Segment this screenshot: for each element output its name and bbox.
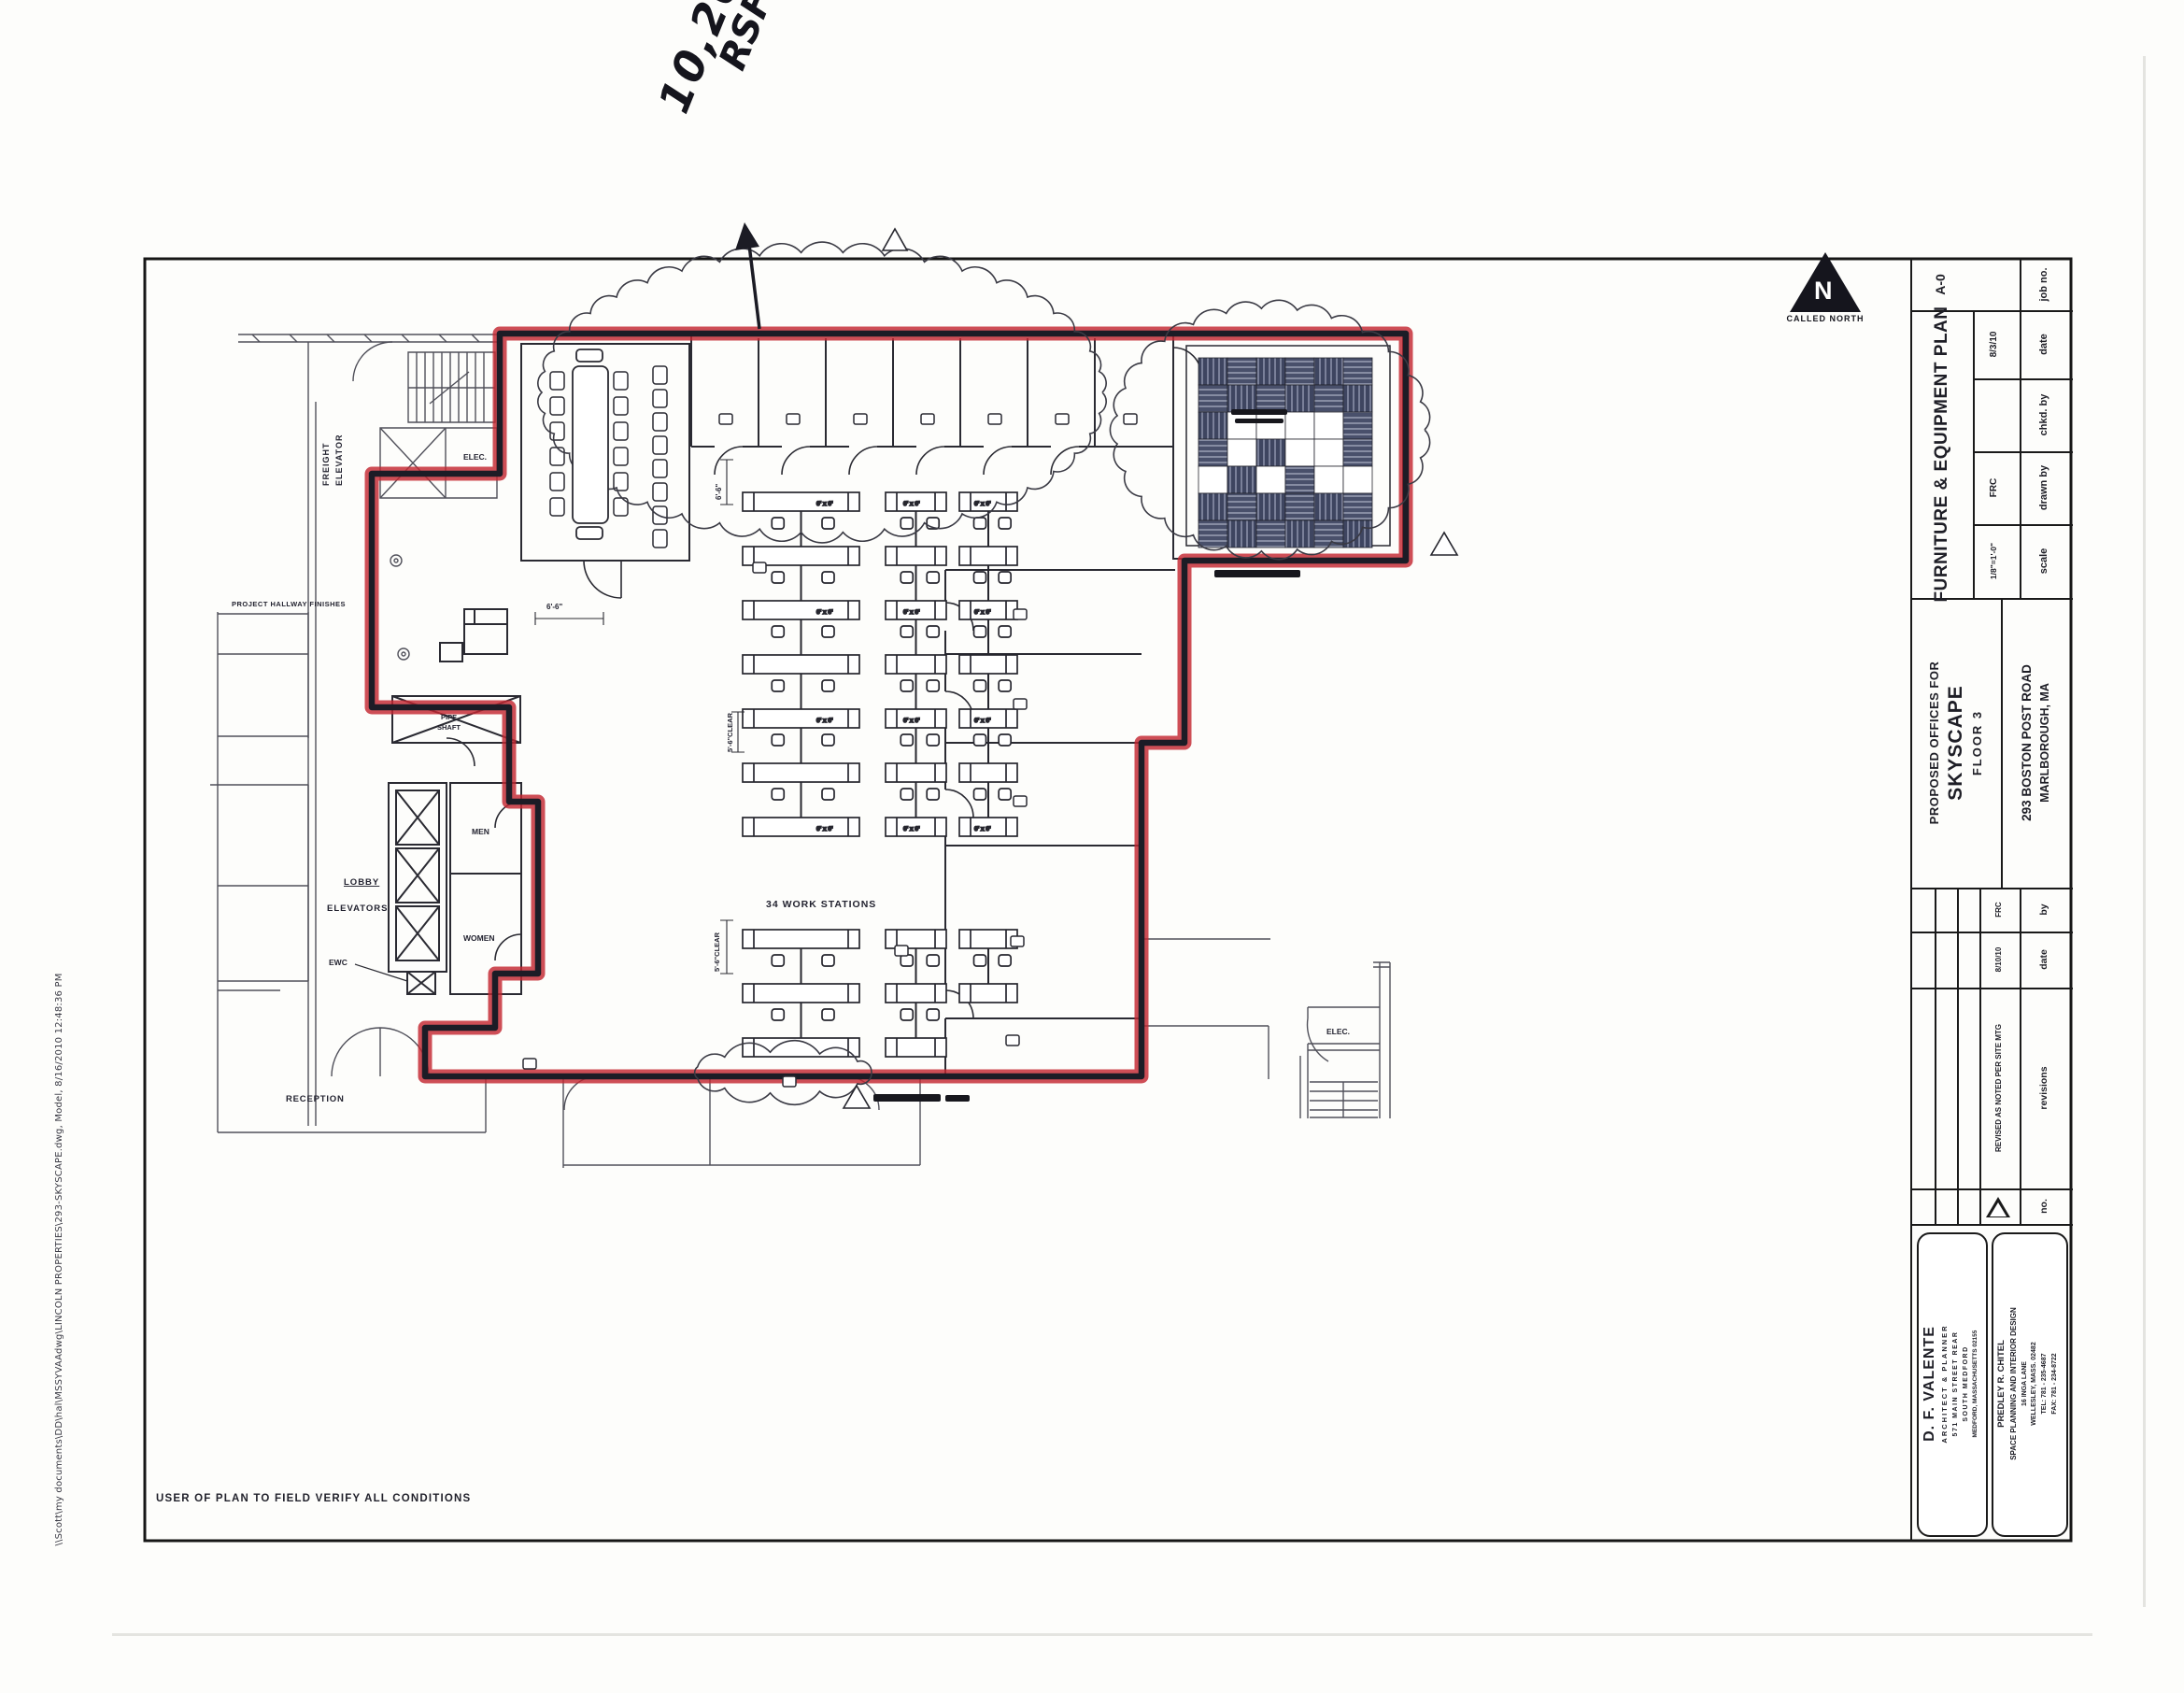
door-tag: [1056, 414, 1069, 424]
door-tag: [1014, 609, 1027, 619]
chair: [653, 530, 667, 548]
dimension-lines: [535, 460, 745, 974]
chair: [653, 413, 667, 431]
carpet-tile: [1198, 439, 1227, 466]
project-title-block: PROPOSED OFFICES FOR SKYSCAPE FLOOR 3: [1913, 598, 1999, 888]
carpet-tile: [1285, 412, 1314, 439]
carpet-tile: [1256, 385, 1285, 412]
north-caption: CALLED NORTH: [1773, 314, 1878, 323]
door-tag: [895, 946, 908, 956]
carpet-tile: [1343, 439, 1372, 466]
carpet-tile: [1227, 385, 1256, 412]
rev1-text: REVISED AS NOTED PER SITE MTG: [1979, 988, 2020, 1188]
door-tag: [1014, 796, 1027, 806]
carpet-tile: [1256, 439, 1285, 466]
designer-stamp: PREDLEY R. CHITEL SPACE PLANNING AND INT…: [1992, 1234, 2064, 1533]
job-no-label: job no.: [2018, 259, 2071, 310]
project-address1: 293 BOSTON POST ROAD: [2020, 664, 2034, 821]
door-tag: [1124, 414, 1137, 424]
carpet-tile: [1343, 493, 1372, 520]
desk-dim-label: 6' x 6': [816, 501, 833, 507]
dim-6-6-b: 6'-6": [715, 484, 723, 500]
carpet-tile: [1227, 466, 1256, 493]
designer-addr1: 16 INGA LANE: [2021, 1361, 2029, 1406]
ewc-label: EWC: [329, 958, 347, 967]
desk-dim-label: 6' x 6': [974, 826, 991, 832]
rev-revisions-label: revisions: [2018, 988, 2071, 1188]
plot-file-path: \\Scott\my documents\DD\hal\MSSYVAAdwg\L…: [54, 979, 73, 1540]
designer-addr2: WELLESLEY, MASS. 02482: [2031, 1342, 2038, 1425]
project-name: SKYSCAPE: [1945, 685, 1967, 801]
sheet-number: A-0: [1910, 259, 1971, 310]
project-address-block: 293 BOSTON POST ROAD MARLBOROUGH, MA: [2001, 598, 2070, 888]
reception-label: RECEPTION: [286, 1094, 345, 1104]
pipe-shaft-label-2: SHAFT: [437, 723, 461, 732]
date-label: date: [2018, 310, 2071, 378]
chair: [653, 460, 667, 477]
door-tag: [854, 414, 867, 424]
desk-dim-label: 6' x 6': [903, 826, 920, 832]
carpet-tile-grid: [1198, 358, 1372, 548]
carpet-tile: [1227, 493, 1256, 520]
carpet-tile: [1227, 520, 1256, 548]
door-tag: [1011, 936, 1024, 946]
drawn-by-value: FRC: [1971, 451, 2018, 524]
carpet-tile: [1343, 412, 1372, 439]
rev1-by: FRC: [1979, 888, 2020, 932]
chair: [550, 498, 564, 516]
illegible-note: [1214, 570, 1300, 577]
carpet-tile: [1198, 412, 1227, 439]
designer-name: PREDLEY R. CHITEL: [1997, 1340, 2007, 1428]
carpet-tile: [1256, 520, 1285, 548]
workstation-desks: 6' x 6'6' x 6'6' x 6'6' x 6'6' x 6'6' x …: [743, 492, 1017, 1057]
elevators-label: ELEVATORS: [327, 903, 388, 914]
door-tag: [783, 1076, 796, 1087]
chair: [653, 366, 667, 384]
chair: [653, 483, 667, 501]
carpet-tile: [1198, 466, 1227, 493]
women-label: WOMEN: [463, 933, 495, 943]
architect-addr2: SOUTH MEDFORD: [1963, 1345, 1970, 1421]
illegible-note: [945, 1095, 970, 1102]
revision-delta-icon: [1986, 1197, 2010, 1217]
desk-dim-label: 6' x 6': [974, 718, 991, 724]
carpet-tile: [1314, 466, 1343, 493]
designer-fax: FAX: 781 - 234-8722: [2051, 1353, 2059, 1414]
door-tag: [1006, 1035, 1019, 1046]
desk-dim-label: 6' x 6': [903, 501, 920, 507]
chkd-by-label: chkd. by: [2018, 378, 2071, 451]
rev1-date: 8/10/10: [1979, 932, 2020, 988]
project-hallway-label: PROJECT HALLWAY FINISHES: [232, 600, 346, 608]
chair: [550, 473, 564, 491]
carpet-tile: [1343, 358, 1372, 385]
carpet-tile: [1343, 385, 1372, 412]
door-tag: [719, 414, 732, 424]
drawing-sheet: 6' x 6'6' x 6'6' x 6'6' x 6'6' x 6'6' x …: [0, 0, 2184, 1693]
north-arrow: N CALLED NORTH: [1773, 252, 1878, 323]
carpet-tile: [1256, 466, 1285, 493]
pipe-shaft-label-1: PIPE: [441, 713, 457, 721]
chair: [550, 397, 564, 415]
chair: [614, 372, 628, 390]
men-label: MEN: [472, 827, 489, 836]
north-letter: N: [1814, 277, 1833, 306]
architect-stamp: D. F. VALENTE ARCHITECT & PLANNER 571 MA…: [1917, 1234, 1984, 1533]
chair: [614, 448, 628, 465]
door-tag: [787, 414, 800, 424]
field-verify-note: USER OF PLAN TO FIELD VERIFY ALL CONDITI…: [156, 1493, 471, 1504]
chair: [550, 422, 564, 440]
desk-dim-label: 6' x 6': [816, 826, 833, 832]
desk-dim-label: 6' x 6': [903, 609, 920, 616]
carpet-tile: [1198, 385, 1227, 412]
carpet-tile: [1343, 466, 1372, 493]
illegible-note: [873, 1094, 941, 1102]
carpet-tile: [1314, 439, 1343, 466]
architect-name: D. F. VALENTE: [1922, 1326, 1938, 1442]
carpet-tile: [1314, 412, 1343, 439]
carpet-tile: [1314, 358, 1343, 385]
scale-value: 1/8"=1'-0": [1971, 524, 2018, 598]
north-arrow-icon: N: [1790, 252, 1861, 312]
elec-bottom-label: ELEC.: [1326, 1027, 1350, 1036]
architect-addr1: 571 MAIN STREET REAR: [1952, 1331, 1960, 1437]
carpet-tile: [1256, 358, 1285, 385]
carpet-tile: [1256, 493, 1285, 520]
designer-title: SPACE PLANNING AND INTERIOR DESIGN: [2010, 1307, 2019, 1460]
elec-top-label: ELEC.: [463, 452, 487, 462]
scale-label: scale: [2018, 524, 2071, 598]
architect-title: ARCHITECT & PLANNER: [1941, 1324, 1949, 1443]
chair: [614, 422, 628, 440]
carpet-tile: [1227, 439, 1256, 466]
carpet-tile: [1256, 412, 1285, 439]
carpet-tile: [1314, 385, 1343, 412]
rsf-leader-arrow: [735, 222, 759, 329]
carpet-tile: [1285, 358, 1314, 385]
project-line1: PROPOSED OFFICES FOR: [1928, 662, 1942, 825]
rev-date-label: date: [2018, 932, 2071, 988]
carpet-tile: [1285, 439, 1314, 466]
date-value: 8/3/10: [1971, 310, 2018, 378]
chair: [614, 397, 628, 415]
rev-by-label: by: [2018, 888, 2071, 932]
desk-dim-label: 6' x 6': [816, 718, 833, 724]
carpet-tile: [1314, 493, 1343, 520]
carpet-tile: [1285, 466, 1314, 493]
desk-dim-label: 6' x 6': [974, 501, 991, 507]
workstation-count-label: 34 WORK STATIONS: [766, 899, 876, 910]
illegible-note: [1231, 409, 1287, 415]
rev-no-label: no.: [2018, 1188, 2071, 1224]
freight-elevator-label-2: ELEVATOR: [334, 434, 344, 486]
conference-table: [573, 349, 608, 539]
chair: [653, 436, 667, 454]
dim-5-6-clear-b: 5'-6"CLEAR: [726, 712, 734, 752]
project-address2: MARLBOROUGH, MA: [2038, 683, 2051, 803]
desk-dim-label: 6' x 6': [816, 609, 833, 616]
carpet-tile: [1285, 520, 1314, 548]
chair: [653, 390, 667, 407]
carpet-tile: [1285, 385, 1314, 412]
dim-6-6-a: 6'-6": [546, 603, 562, 611]
carpet-tile: [1198, 520, 1227, 548]
door-tag: [523, 1059, 536, 1069]
freight-elevator-label-1: FREIGHT: [321, 443, 331, 487]
project-floor: FLOOR 3: [1971, 710, 1985, 775]
lobby-label: LOBBY: [344, 877, 379, 888]
illegible-note: [1235, 419, 1283, 423]
chair: [550, 448, 564, 465]
door-tag: [753, 562, 766, 573]
drawn-by-label: drawn by: [2018, 451, 2071, 524]
chair: [550, 372, 564, 390]
carpet-tile: [1198, 493, 1227, 520]
carpet-tile: [1227, 358, 1256, 385]
architect-addr3: MEDFORD, MASSACHUSETTS 02155: [1972, 1330, 1978, 1438]
dim-5-6-clear-a: 5'-6"CLEAR: [713, 932, 721, 972]
designer-tel: TEL: 781 - 235-4687: [2041, 1354, 2049, 1415]
door-tag: [1014, 699, 1027, 709]
carpet-tile: [1198, 358, 1227, 385]
sheet-border: [145, 259, 2071, 1541]
sheet-title: FURNITURE & EQUIPMENT PLAN: [1913, 310, 1971, 598]
door-tag: [921, 414, 934, 424]
carpet-tile: [1227, 412, 1256, 439]
door-tag: [988, 414, 1001, 424]
desk-dim-label: 6' x 6': [903, 718, 920, 724]
desk-dim-label: 6' x 6': [974, 609, 991, 616]
carpet-tile: [1285, 493, 1314, 520]
